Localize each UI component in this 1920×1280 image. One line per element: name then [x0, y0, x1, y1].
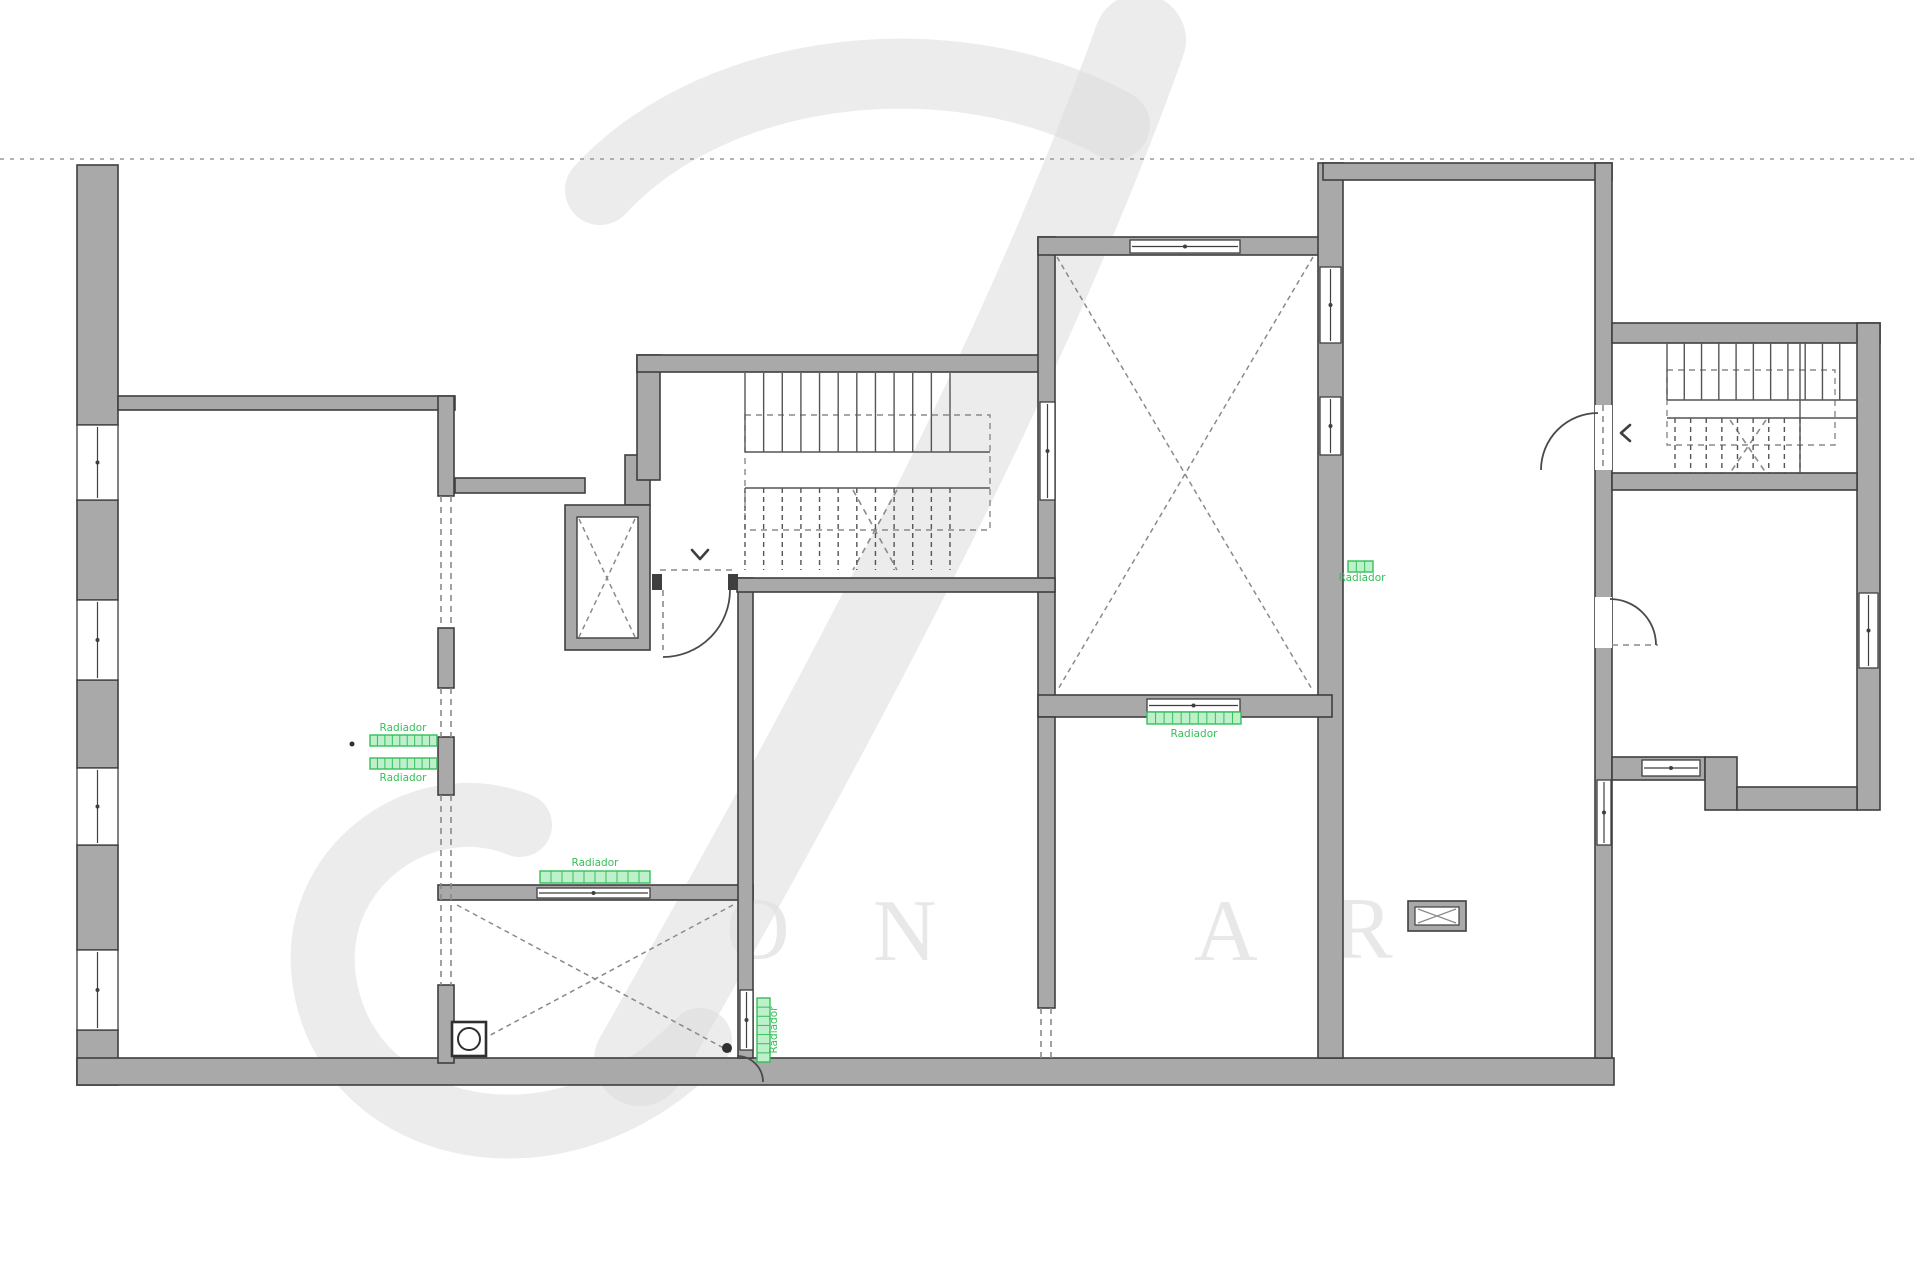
window-dot — [96, 638, 100, 642]
wall — [438, 628, 454, 688]
radiator-label: Radiador — [768, 1006, 780, 1054]
wall — [455, 478, 585, 493]
wall — [77, 680, 118, 768]
door-opening — [1595, 597, 1612, 648]
wall — [438, 737, 454, 795]
radiator-label: Radiador — [1171, 728, 1219, 740]
radiator-label: Radiador — [380, 722, 428, 734]
window-dot — [96, 461, 100, 465]
radiator-label: Radiador — [572, 857, 620, 869]
window-dot — [96, 988, 100, 992]
window-dot — [1192, 704, 1196, 708]
radiator-label: Radiador — [1339, 572, 1387, 584]
radiator-label: Radiador — [380, 772, 428, 784]
wall — [1612, 473, 1857, 490]
watermark-letter: A — [1194, 883, 1258, 980]
window-dot — [1867, 629, 1871, 633]
wall — [1705, 757, 1737, 810]
wall — [737, 578, 1055, 592]
radiator-symbol — [370, 758, 437, 769]
wall — [77, 1058, 1614, 1085]
radiator-symbol — [370, 735, 437, 746]
window-dot — [592, 891, 596, 895]
wall — [118, 396, 455, 410]
wall — [1323, 163, 1612, 180]
window-dot — [1183, 245, 1187, 249]
radiator-symbol — [1348, 561, 1373, 572]
wall — [77, 165, 118, 425]
wall — [1612, 323, 1880, 343]
canvas-background — [0, 0, 1920, 1280]
window-dot — [745, 1018, 749, 1022]
floor-plan-page: ONARRadiadorRadiadorRadiadorRadiadorRadi… — [0, 0, 1920, 1280]
floor-plan-drawing: ONARRadiadorRadiadorRadiadorRadiadorRadi… — [0, 0, 1920, 1280]
radiator-symbol — [1147, 712, 1241, 724]
wall — [77, 500, 118, 600]
wall — [637, 355, 1047, 372]
door-jamb-cap — [652, 574, 662, 590]
wall — [438, 396, 454, 496]
wall — [1857, 323, 1880, 810]
window-dot — [1046, 449, 1050, 453]
window-dot — [96, 805, 100, 809]
window-dot — [1602, 811, 1606, 815]
door-jamb-cap — [728, 574, 738, 590]
wall — [1737, 787, 1857, 810]
wall — [1038, 717, 1055, 1008]
plan-dot — [350, 742, 355, 747]
window-dot — [1329, 303, 1333, 307]
wall — [738, 578, 753, 1058]
watermark-letter: N — [873, 883, 937, 980]
wall — [77, 845, 118, 950]
window-dot — [1669, 766, 1673, 770]
wall — [637, 355, 660, 480]
window-dot — [1329, 424, 1333, 428]
plan-dot — [722, 1043, 732, 1053]
